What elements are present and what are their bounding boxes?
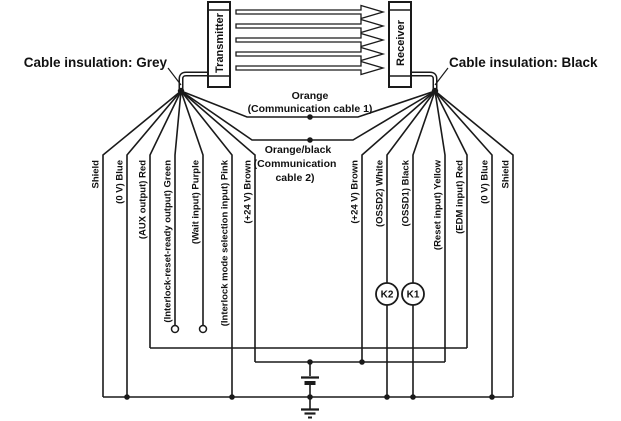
wire-label: (Reset input) Yellow — [433, 159, 444, 250]
comm2-caption-line1: (Communication — [254, 158, 337, 170]
wire-left-wait-purple: (Wait input) Purple — [181, 91, 207, 333]
relay-k1-label: K1 — [407, 290, 420, 301]
left-wires: Shield (0 V) Blue (AUX output) Red (Inte… — [91, 91, 256, 397]
grey-cable-title: Cable insulation: Grey — [24, 55, 168, 70]
wire-label: (0 V) Blue — [480, 160, 491, 204]
wire-right-reset-yellow: (Reset input) Yellow — [433, 91, 446, 362]
wire-right-shield: Shield — [435, 91, 513, 397]
black-cable: Cable insulation: Black — [412, 55, 598, 94]
relay-k2: K2 — [376, 283, 398, 305]
black-cable-title: Cable insulation: Black — [449, 55, 598, 70]
wire-label: Shield — [91, 160, 102, 189]
wire-label: Shield — [501, 160, 512, 189]
junction-dot — [384, 394, 390, 400]
beam-arrow — [236, 34, 383, 47]
wire-label: (+24 V) Brown — [243, 160, 254, 224]
beam-arrow — [236, 62, 383, 75]
junction-dot — [489, 394, 495, 400]
junction-dot — [410, 394, 416, 400]
wire-right-24v-brown: (+24 V) Brown — [350, 91, 436, 362]
wire-label: (+24 V) Brown — [350, 160, 361, 224]
green-wire-terminal — [172, 326, 179, 333]
interconnect-lines — [103, 348, 513, 397]
grey-cable: Cable insulation: Grey — [24, 55, 207, 94]
junction-dot — [359, 359, 365, 365]
wire-label: (AUX output) Red — [138, 160, 149, 239]
communication-cable-1: Orange (Communication cable 1) — [181, 90, 435, 120]
wire-right-ossd1-black: (OSSD1) Black — [401, 91, 436, 397]
purple-wire-terminal — [200, 326, 207, 333]
comm1-caption: (Communication cable 1) — [248, 103, 373, 115]
wire-label: (Wait input) Purple — [191, 160, 202, 244]
relay-k1: K1 — [402, 283, 424, 305]
wire-label: (0 V) Blue — [115, 160, 126, 204]
junction-dot — [229, 394, 235, 400]
beam-arrow — [236, 48, 383, 61]
battery-icon — [301, 362, 319, 397]
wire-label: (EDM input) Red — [455, 160, 466, 234]
wire-label: (Interlock mode selection input) Pink — [220, 159, 231, 326]
receiver-label: Receiver — [395, 19, 407, 66]
junction-dot — [307, 394, 313, 400]
right-wires: (+24 V) Brown (OSSD2) White (OSSD1) Blac… — [350, 91, 514, 397]
wire-label: (OSSD1) Black — [401, 159, 412, 226]
comm1-color-label: Orange — [292, 90, 329, 102]
wire-label: (OSSD2) White — [375, 160, 386, 227]
comm1-junction-dot — [307, 114, 313, 120]
wire-left-mode-pink: (Interlock mode selection input) Pink — [181, 91, 232, 397]
comm2-caption-line2: cable 2) — [275, 172, 314, 184]
ground-icon — [301, 397, 319, 418]
receiver-box: Receiver — [389, 2, 411, 87]
junction-dot — [124, 394, 130, 400]
wire-left-interlock-green: (Interlock-reset-ready output) Green — [163, 91, 182, 333]
relay-k2-label: K2 — [381, 290, 394, 301]
transmitter-label: Transmitter — [214, 12, 226, 73]
wire-label: (Interlock-reset-ready output) Green — [163, 160, 174, 323]
beam-arrow — [236, 20, 383, 33]
wiring-diagram: Transmitter Receiver Cable insulation: G… — [0, 0, 621, 421]
wire-right-0v-blue: (0 V) Blue — [435, 91, 492, 397]
junction-dot — [307, 359, 313, 365]
comm2-junction-dot — [307, 137, 313, 143]
beam-arrow — [236, 6, 383, 19]
transmitter-box: Transmitter — [208, 2, 230, 87]
comm2-color-label: Orange/black — [265, 144, 332, 156]
diagram-canvas: Transmitter Receiver Cable insulation: G… — [0, 0, 621, 421]
beam-arrows — [236, 6, 383, 75]
